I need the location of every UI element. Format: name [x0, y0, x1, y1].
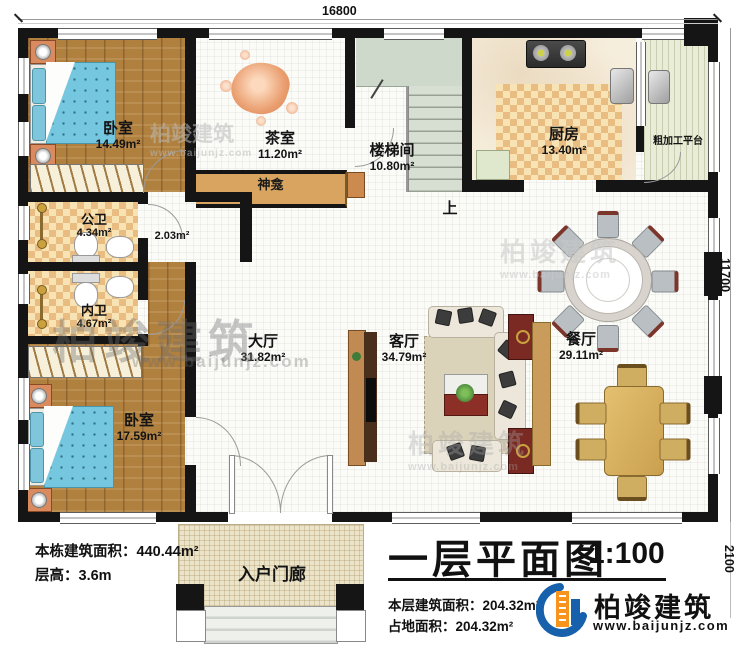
room-label-porch: 入户门廊 — [238, 566, 306, 583]
window — [60, 512, 156, 524]
wall — [240, 192, 252, 262]
room-label-stairwell: 楼梯间10.80m² — [369, 142, 414, 173]
wall — [185, 262, 196, 417]
porch-column-base — [336, 610, 366, 642]
wall — [157, 28, 209, 38]
sideboard-cabinet — [508, 314, 534, 360]
total-building-area: 本栋建筑面积：440.44m² — [35, 540, 199, 561]
wall — [462, 180, 524, 192]
shrine-cabinet: 神龛 — [196, 170, 347, 208]
wall — [28, 336, 138, 344]
entry-door-leaf — [229, 455, 235, 514]
floor-height: 层高：3.6m — [35, 564, 112, 585]
window — [392, 512, 480, 524]
room-label-living-room: 客厅34.79m² — [382, 333, 427, 364]
dining-chair — [576, 439, 607, 461]
dimension-line — [18, 23, 718, 24]
sofa-pillow — [457, 307, 474, 324]
stair-flight — [408, 86, 463, 192]
title-underline — [388, 578, 666, 581]
window — [18, 274, 30, 304]
window — [642, 28, 684, 40]
table-plant — [456, 384, 474, 402]
porch-column — [176, 584, 204, 610]
footprint-area: 占地面积：204.32m² — [388, 615, 513, 635]
rug-dot — [220, 80, 232, 92]
kitchen-sink — [610, 68, 634, 104]
plant — [352, 352, 361, 361]
room-label-bedroom2: 卧室17.59m² — [117, 412, 162, 443]
wall — [185, 38, 196, 192]
pillow — [32, 68, 46, 104]
porch-steps — [204, 606, 338, 644]
floor-area: 本层建筑面积：204.32m² — [388, 594, 540, 614]
window — [18, 206, 30, 240]
dining-chair — [597, 211, 619, 238]
sofa-pillow — [469, 445, 486, 462]
room-label-bedroom1: 卧室14.49m² — [96, 120, 141, 151]
window — [18, 58, 30, 94]
room-label-main-hall: 大厅31.82m² — [241, 333, 286, 364]
nightstand — [30, 40, 56, 64]
nightstand — [26, 488, 52, 512]
room-label-dining-room: 餐厅29.11m² — [559, 331, 603, 362]
shoe-cabinet — [347, 172, 365, 198]
rail-knob — [37, 319, 47, 329]
room-label-inner-bath: 内卫4.67m² — [77, 303, 112, 331]
rail-knob — [37, 285, 47, 295]
kitchen-cabinet — [476, 150, 510, 180]
window — [18, 378, 30, 420]
sofa — [432, 440, 502, 472]
wall — [636, 126, 644, 152]
column — [704, 376, 722, 414]
window — [18, 444, 30, 490]
window — [58, 28, 157, 40]
pillow — [30, 448, 44, 483]
brand-logo-icon — [536, 583, 588, 639]
entry-opening — [228, 512, 332, 522]
wall — [138, 192, 148, 204]
dim-right-label: 11700 — [718, 258, 732, 292]
room-label-public-bath: 公卫4.34m² — [77, 212, 112, 240]
rect-dining-table — [604, 386, 664, 476]
bed-blanket — [44, 406, 90, 486]
brand-website: www.baijunjz.com — [593, 618, 729, 633]
sofa-pillow — [435, 309, 453, 327]
wall — [28, 262, 138, 271]
stove — [526, 40, 586, 68]
bathroom-sink — [106, 276, 134, 298]
wardrobe — [28, 346, 142, 378]
window — [18, 122, 30, 156]
porch-column-base — [176, 610, 206, 642]
rug-dot — [240, 50, 250, 60]
sideboard-cabinet — [508, 428, 534, 474]
window — [572, 512, 682, 524]
pass-through-window — [636, 42, 646, 126]
stair-rail — [406, 86, 408, 192]
wall — [185, 465, 196, 512]
rail-knob — [37, 239, 47, 249]
wall — [462, 38, 472, 188]
window — [708, 218, 720, 252]
dining-chair — [660, 439, 691, 461]
sideboard — [532, 322, 551, 466]
bed-blanket — [46, 62, 92, 142]
room-label-kitchen: 厨房13.40m² — [542, 126, 587, 157]
dining-chair — [617, 476, 647, 501]
window — [209, 28, 332, 40]
stair-landing — [356, 38, 462, 87]
room-label-prep-platform: 粗加工平台 — [653, 134, 703, 149]
dining-chair — [538, 271, 565, 293]
dining-chair — [576, 403, 607, 425]
rug-dot — [286, 102, 298, 114]
lazy-susan — [586, 258, 630, 302]
pillow — [30, 412, 44, 447]
rug-dot — [256, 116, 266, 126]
window — [708, 418, 720, 474]
wall — [444, 28, 642, 38]
entry-door-leaf — [327, 455, 333, 514]
dimension-tick — [14, 13, 23, 22]
wall — [332, 28, 384, 38]
dim-top-label: 16800 — [322, 4, 357, 18]
pillow — [32, 105, 46, 141]
wall — [18, 192, 143, 202]
room-label-tea-room: 茶室11.20m² — [258, 130, 302, 161]
dining-chair — [660, 403, 691, 425]
window — [384, 28, 444, 40]
wall — [138, 334, 148, 346]
wall — [138, 238, 148, 300]
rail-knob — [37, 203, 47, 213]
room-label-corridor: 2.03m² — [155, 230, 190, 243]
floor-plan-page: { "plan": { "dim_top": "16800", "dim_rig… — [0, 0, 750, 648]
plan-title: 一层平面图 — [388, 527, 608, 585]
porch-column — [336, 584, 364, 610]
dimension-line — [18, 19, 718, 20]
wall — [345, 38, 355, 128]
window — [708, 300, 720, 376]
stairs-up-label: 上 — [442, 197, 457, 218]
dining-chair — [652, 271, 679, 293]
dim-porch-label: 2100 — [722, 545, 736, 573]
tv-screen — [366, 378, 376, 422]
plan-scale: 1:100 — [588, 537, 665, 571]
window — [708, 62, 720, 172]
platform-sink — [648, 70, 670, 104]
